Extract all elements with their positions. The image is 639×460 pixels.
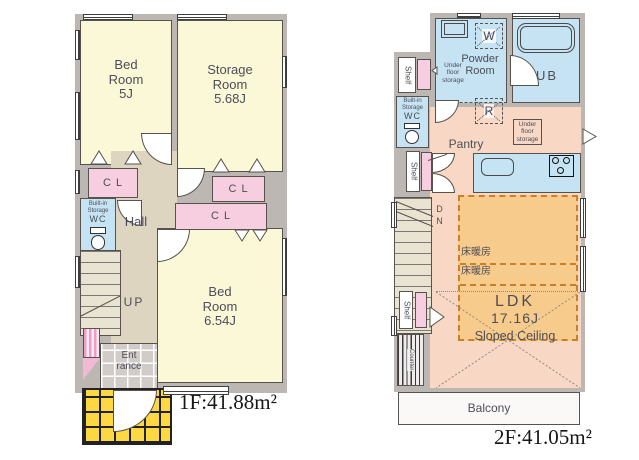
window bbox=[75, 30, 80, 60]
wc-storage-label: Built-in Storage bbox=[81, 201, 115, 214]
kitchen-sink-icon bbox=[481, 158, 514, 176]
closet-label: C L bbox=[211, 210, 231, 222]
closet-triangle-icon bbox=[90, 150, 108, 165]
wc-label: WC bbox=[397, 111, 428, 121]
closet-triangle-icon bbox=[234, 229, 250, 242]
under-floor-storage-label: Under floor storage bbox=[437, 62, 469, 84]
fridge-label: R bbox=[484, 104, 495, 118]
room-name: Bed Room bbox=[203, 284, 238, 314]
room-size: 5J bbox=[119, 86, 133, 101]
floor-plan-canvas: C L C L C L Built-in Storage WC Bed Room bbox=[0, 0, 639, 460]
shoe-storage-corner bbox=[83, 358, 100, 380]
shelf-bottom-panel bbox=[415, 292, 427, 328]
unit-bath-label: UB bbox=[532, 69, 562, 84]
pantry-label: Pantry bbox=[444, 138, 488, 151]
window bbox=[75, 170, 80, 194]
floor-heating-label: 床暖房 bbox=[461, 266, 505, 277]
closet-triangle-icon bbox=[252, 229, 268, 242]
closet-label: C L bbox=[228, 183, 248, 195]
balcony-label: Balcony bbox=[468, 402, 511, 415]
stairs-dn-label: DN bbox=[434, 204, 445, 227]
closet-triangle-icon bbox=[212, 158, 230, 173]
window bbox=[177, 14, 227, 20]
room-name: Storage Room bbox=[207, 62, 253, 92]
shelf-bottom: Shelf bbox=[399, 291, 413, 329]
window bbox=[580, 246, 586, 292]
staircase-1f bbox=[80, 250, 121, 336]
refrigerator-box: R bbox=[475, 98, 503, 124]
shoe-storage bbox=[83, 328, 100, 358]
shelf-middle-panel bbox=[421, 152, 432, 191]
wc-room-1f: Built-in Storage WC bbox=[80, 198, 116, 257]
shelf-label: Shelf bbox=[409, 162, 418, 180]
window bbox=[282, 238, 287, 296]
closet-label: C L bbox=[103, 177, 123, 189]
floor1-area-label: 1F:41.88m² bbox=[168, 391, 288, 415]
bedroom-large-label: Bed Room 6.54J bbox=[192, 285, 248, 329]
window bbox=[75, 256, 80, 288]
shelf-top-panel bbox=[417, 59, 431, 90]
floor-heating-divider bbox=[460, 284, 576, 286]
window bbox=[282, 56, 287, 88]
wc-room-2f: Built-in Storage WC bbox=[396, 96, 429, 148]
window bbox=[391, 202, 397, 228]
entrance-line1: Ent bbox=[121, 350, 136, 361]
counter-label: Counter bbox=[407, 349, 414, 370]
wc-label: WC bbox=[81, 214, 115, 224]
closet-triangle-icon bbox=[248, 158, 266, 173]
sink-icon bbox=[441, 20, 468, 38]
exterior-door-icon bbox=[582, 128, 597, 145]
door-swing-icon bbox=[429, 306, 445, 328]
bedroom-small-label: Bed Room 5J bbox=[98, 58, 154, 102]
toilet-icon bbox=[403, 123, 423, 147]
entrance-label: Ent rance bbox=[100, 350, 158, 372]
hatch-arrow-icon bbox=[431, 66, 438, 75]
window bbox=[512, 13, 560, 19]
window bbox=[580, 198, 586, 238]
washing-machine-box: W bbox=[475, 23, 503, 49]
washer-label: W bbox=[482, 29, 495, 43]
closet-left: C L bbox=[88, 168, 138, 198]
shelf-label: Shelf bbox=[403, 66, 412, 84]
window bbox=[75, 92, 80, 140]
entrance-line2: rance bbox=[116, 361, 141, 372]
room-size: 6.54J bbox=[204, 313, 236, 328]
room-note: Sloped Ceiling bbox=[455, 329, 575, 343]
room-name: Bed Room bbox=[109, 57, 144, 87]
stove-icon bbox=[549, 155, 574, 177]
window bbox=[391, 316, 397, 336]
under-floor-storage-label: Under floor storage bbox=[514, 121, 541, 143]
closet-middle: C L bbox=[175, 203, 267, 230]
shelf-middle: Shelf bbox=[406, 151, 420, 192]
room-name: LDK bbox=[455, 293, 575, 311]
shelf-label: Shelf bbox=[402, 301, 411, 319]
room-size: 5.68J bbox=[214, 91, 246, 106]
ldk-label: LDK 17.16J Sloped Ceiling bbox=[455, 293, 575, 343]
balcony: Balcony bbox=[398, 392, 580, 425]
stairs-up-label: UP bbox=[116, 296, 152, 309]
window bbox=[83, 14, 133, 20]
floor2-area-label: 2F:41.05m² bbox=[484, 426, 602, 450]
storage-room-label: Storage Room 5.68J bbox=[195, 63, 265, 107]
shelf-top: Shelf bbox=[398, 57, 416, 93]
counter-unit: Counter bbox=[397, 334, 424, 386]
floor-heating-label: 床暖房 bbox=[461, 247, 505, 258]
wc-storage-label: Built-in Storage bbox=[397, 98, 428, 111]
window bbox=[457, 13, 481, 18]
under-floor-storage-box: Under floor storage bbox=[513, 119, 542, 145]
room-size: 17.16J bbox=[455, 311, 575, 327]
closet-right: C L bbox=[212, 176, 265, 202]
bathtub-icon bbox=[517, 23, 575, 53]
floor2-notch bbox=[394, 13, 430, 52]
floor-heating-divider bbox=[460, 263, 576, 265]
hall-label: Hall bbox=[116, 215, 156, 230]
closet-triangle-icon bbox=[124, 150, 142, 165]
